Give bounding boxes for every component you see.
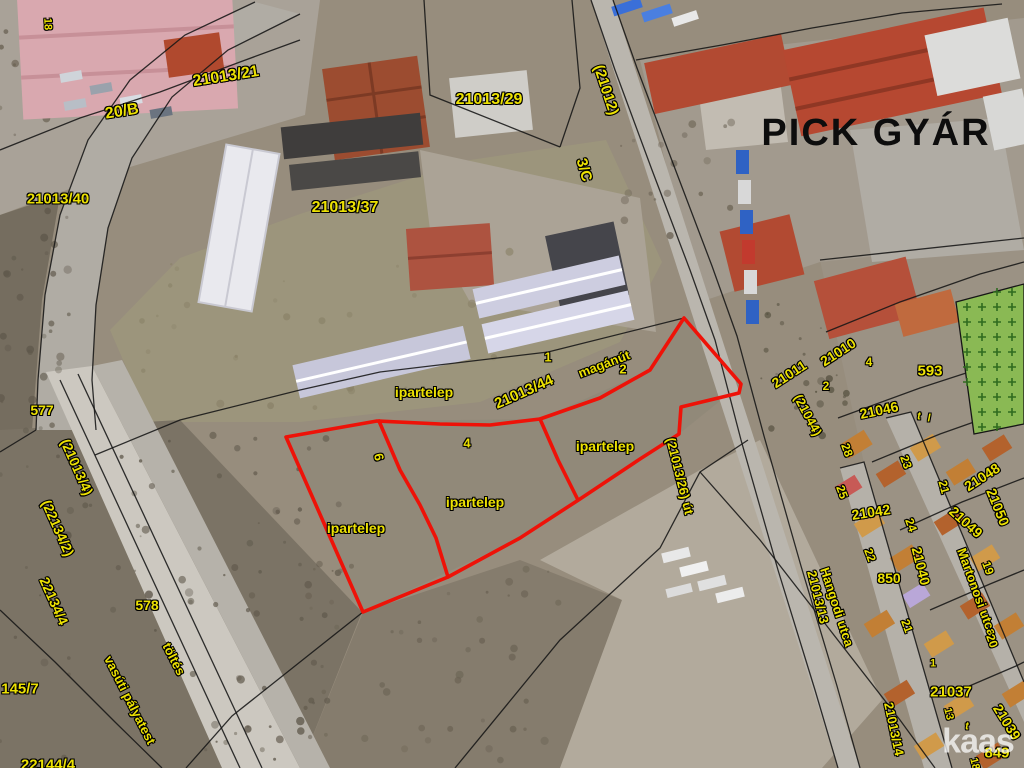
parcel-number-label: 21040 [909, 545, 932, 586]
aerial-cadastral-map: 1821013/2120/B21013/4021013/29(21012)3/C… [0, 0, 1024, 768]
parcel-number-label: 850 [877, 571, 900, 585]
map-text-label: ipartelep [395, 385, 453, 399]
map-text-label: vasúti pályatest [102, 654, 158, 747]
parcel-number-label: 24 [903, 517, 919, 534]
parcel-number-label: 6 [372, 452, 386, 462]
parcel-number-label: l [927, 414, 930, 425]
map-text-label: ipartelep [327, 521, 385, 535]
parcel-number-label: 21013/37 [312, 200, 379, 216]
map-text-label: ipartelep [576, 439, 634, 453]
parcel-number-label: 25 [834, 484, 850, 501]
parcel-number-label: 21042 [851, 502, 892, 522]
parcel-number-label: 21037 [930, 685, 972, 700]
parcel-number-label: 22144/4 [21, 758, 75, 768]
parcel-number-label: 21013/14 [882, 701, 906, 757]
parcel-number-label: 2 [619, 363, 626, 376]
parcel-number-label: 3/C [574, 157, 595, 184]
parcel-number-label: (21013/4) [58, 437, 95, 497]
parcel-number-label: 577 [30, 403, 53, 417]
map-text-label: (21013/26) út [664, 436, 696, 516]
parcel-number-label: 21049 [947, 504, 985, 540]
map-labels-layer: 1821013/2120/B21013/4021013/29(21012)3/C… [0, 0, 1024, 768]
parcel-number-label: 593 [917, 364, 942, 379]
parcel-number-label: 2 [823, 380, 830, 392]
parcel-number-label: 28 [839, 442, 855, 459]
parcel-number-label: 21010 [818, 336, 858, 369]
parcel-number-label: 21 [936, 479, 951, 495]
parcel-number-label: 1 [930, 659, 936, 670]
parcel-number-label: 21013/44 [492, 372, 555, 411]
parcel-number-label: 21050 [984, 486, 1012, 527]
factory-name-label: PICK GYÁR [761, 114, 990, 152]
parcel-number-label: 21013/29 [456, 92, 523, 108]
parcel-number-label: 21013/40 [27, 192, 90, 207]
kaas-watermark: kaas [942, 723, 1014, 762]
parcel-number-label: 21013/21 [192, 64, 260, 90]
parcel-number-label: 21011 [769, 358, 809, 391]
parcel-number-label: t [917, 412, 921, 423]
parcel-number-label: (22134/2) [39, 498, 76, 558]
parcel-number-label: 18 [41, 18, 52, 31]
parcel-number-label: 20 [984, 633, 1000, 650]
parcel-number-label: 4 [866, 356, 873, 368]
parcel-number-label: 20/B [104, 101, 140, 122]
map-text-label: ipartelep [446, 495, 504, 509]
parcel-number-label: (21044) [792, 392, 825, 438]
parcel-number-label: 21046 [859, 399, 900, 421]
parcel-number-label: 23 [898, 454, 914, 471]
parcel-number-label: 22134/4 [37, 575, 70, 627]
parcel-number-label: 4 [463, 437, 470, 450]
parcel-number-label: 1 [544, 351, 551, 364]
parcel-number-label: (21012) [591, 63, 621, 117]
parcel-number-label: 13 [941, 707, 955, 722]
map-text-label: töltés [160, 641, 187, 678]
parcel-number-label: 19 [980, 560, 996, 577]
parcel-number-label: 578 [135, 598, 158, 612]
parcel-number-label: 22 [862, 547, 878, 564]
parcel-number-label: 21 [899, 618, 915, 635]
parcel-number-label: 145/7 [1, 682, 39, 697]
